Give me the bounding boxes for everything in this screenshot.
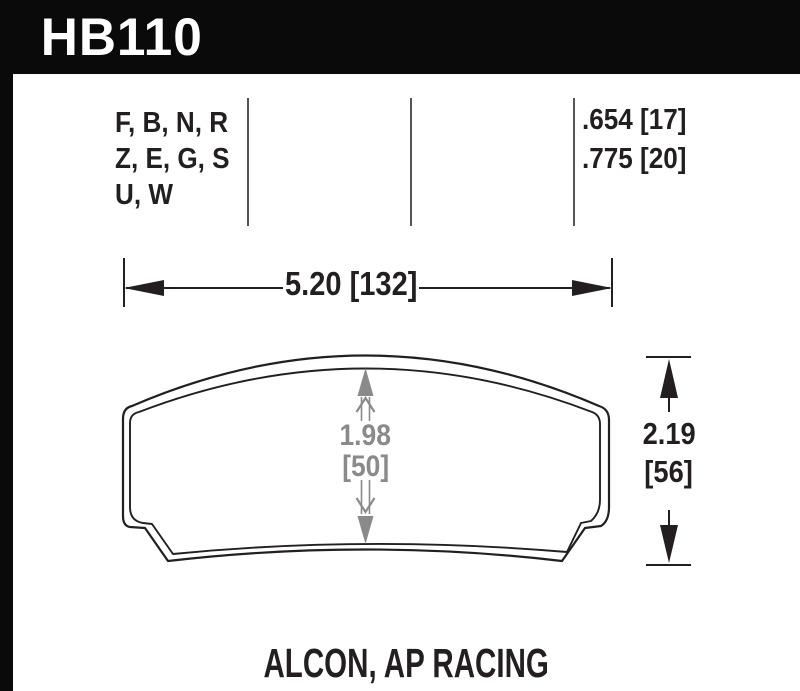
center-height-dimension-label: 1.98 [50] xyxy=(315,420,416,482)
width-dimension-label: 5.20 [132] xyxy=(251,264,451,304)
pad-outline-drawing xyxy=(0,0,800,691)
width-dim-arrowhead-right xyxy=(572,280,612,296)
width-dim-arrowhead-left xyxy=(124,280,164,296)
height-dim-arrowhead-up xyxy=(660,359,678,398)
height-dimension-label: 2.19 [56] xyxy=(619,415,719,491)
height-dim-arrowhead-down xyxy=(660,525,678,563)
spec-sheet: HB110 F, B, N, R Z, E, G, S U, W .654 [1… xyxy=(0,0,800,691)
applications-text: ALCON, AP RACING xyxy=(13,641,800,685)
